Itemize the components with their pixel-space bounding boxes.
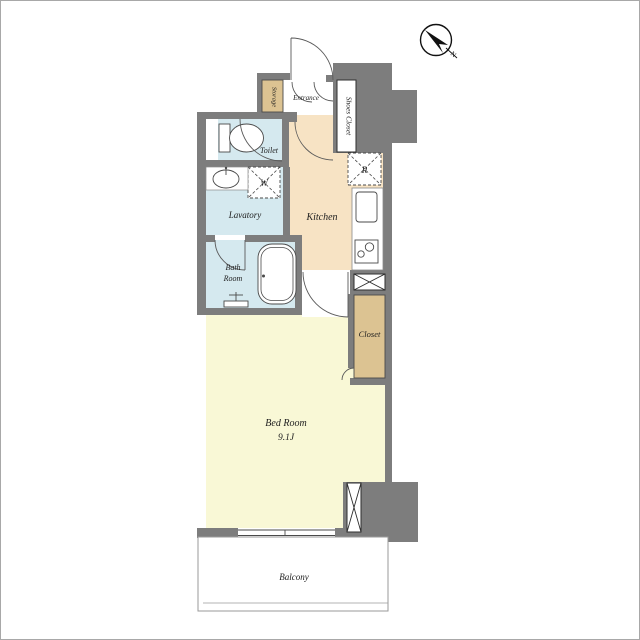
bedroom-doorway-floor [302, 270, 348, 317]
kitchen-counter [352, 188, 383, 270]
shoes-closet-label: Shoes Closet [345, 97, 354, 136]
kitchen-label: Kitchen [305, 212, 337, 223]
lavatory-sink [206, 167, 248, 190]
storage-label: Storage [271, 87, 278, 107]
bedroom-size-label: 9.1J [278, 433, 295, 443]
compass: N [421, 25, 458, 60]
floor-plan: Entrance Storage Shoes Closet Toilet Lav… [0, 0, 640, 640]
stove-burner [358, 251, 364, 257]
toilet-tank [219, 124, 230, 152]
floor-plan-svg: Entrance Storage Shoes Closet Toilet Lav… [0, 0, 640, 640]
toilet-bowl [230, 124, 264, 152]
stove-burner [365, 243, 373, 251]
tub-drain [262, 275, 265, 278]
bathroom-label-line1: Bath [225, 263, 240, 272]
bathroom-label-line2: Room [223, 274, 243, 283]
toilet-label: Toilet [260, 146, 279, 155]
kitchen-sink [356, 192, 377, 222]
lavatory-label: Lavatory [228, 210, 262, 220]
closet-label: Closet [359, 329, 381, 339]
refrigerator-label: R [361, 165, 368, 175]
toilet-door-recess [206, 119, 218, 160]
pipe-space [354, 274, 385, 290]
entrance-door-arc [291, 38, 333, 80]
bedroom-label: Bed Room [265, 418, 306, 429]
pillar-hatch [347, 483, 361, 532]
balcony-label: Balcony [279, 572, 309, 582]
entrance-label: Entrance [292, 94, 319, 102]
bathtub [258, 244, 296, 304]
wall-block-top-right-ext [390, 90, 417, 143]
